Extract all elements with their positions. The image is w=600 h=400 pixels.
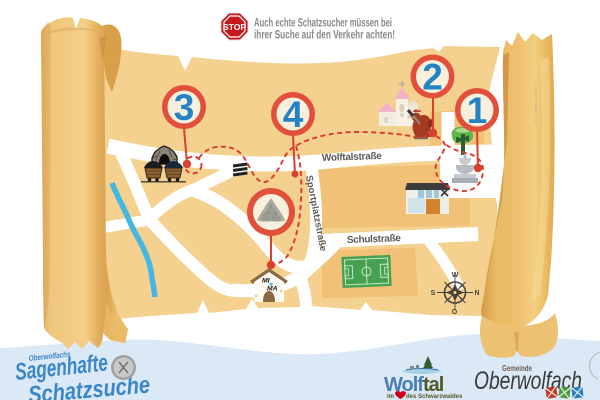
svg-text:S: S (431, 290, 436, 297)
svg-text:Wolftal: Wolftal (384, 374, 444, 396)
svg-text:W: W (452, 272, 459, 279)
svg-text:Auch echte Schatzsucher müssen: Auch echte Schatzsucher müssen bei (254, 18, 392, 30)
svg-text:O: O (452, 309, 458, 316)
svg-text:im: im (387, 394, 394, 400)
svg-text:des Schwarzwaldes: des Schwarzwaldes (406, 394, 463, 400)
svg-text:©2014 www.wolftal.de: ©2014 www.wolftal.de (533, 85, 538, 125)
svg-text:ihrer Suche auf den Verkehr ac: ihrer Suche auf den Verkehr achten! (254, 30, 395, 42)
svg-text:STOP: STOP (223, 22, 247, 32)
svg-text:Schulstraße: Schulstraße (347, 233, 402, 246)
svg-text:3: 3 (174, 87, 195, 128)
svg-text:Wolftalstraße: Wolftalstraße (322, 151, 383, 164)
svg-text:MA: MA (267, 286, 278, 293)
svg-text:MI: MI (262, 278, 270, 285)
svg-text:2: 2 (422, 57, 443, 98)
svg-text:4: 4 (283, 94, 304, 135)
svg-text:N: N (474, 290, 479, 297)
svg-text:1: 1 (467, 90, 488, 131)
